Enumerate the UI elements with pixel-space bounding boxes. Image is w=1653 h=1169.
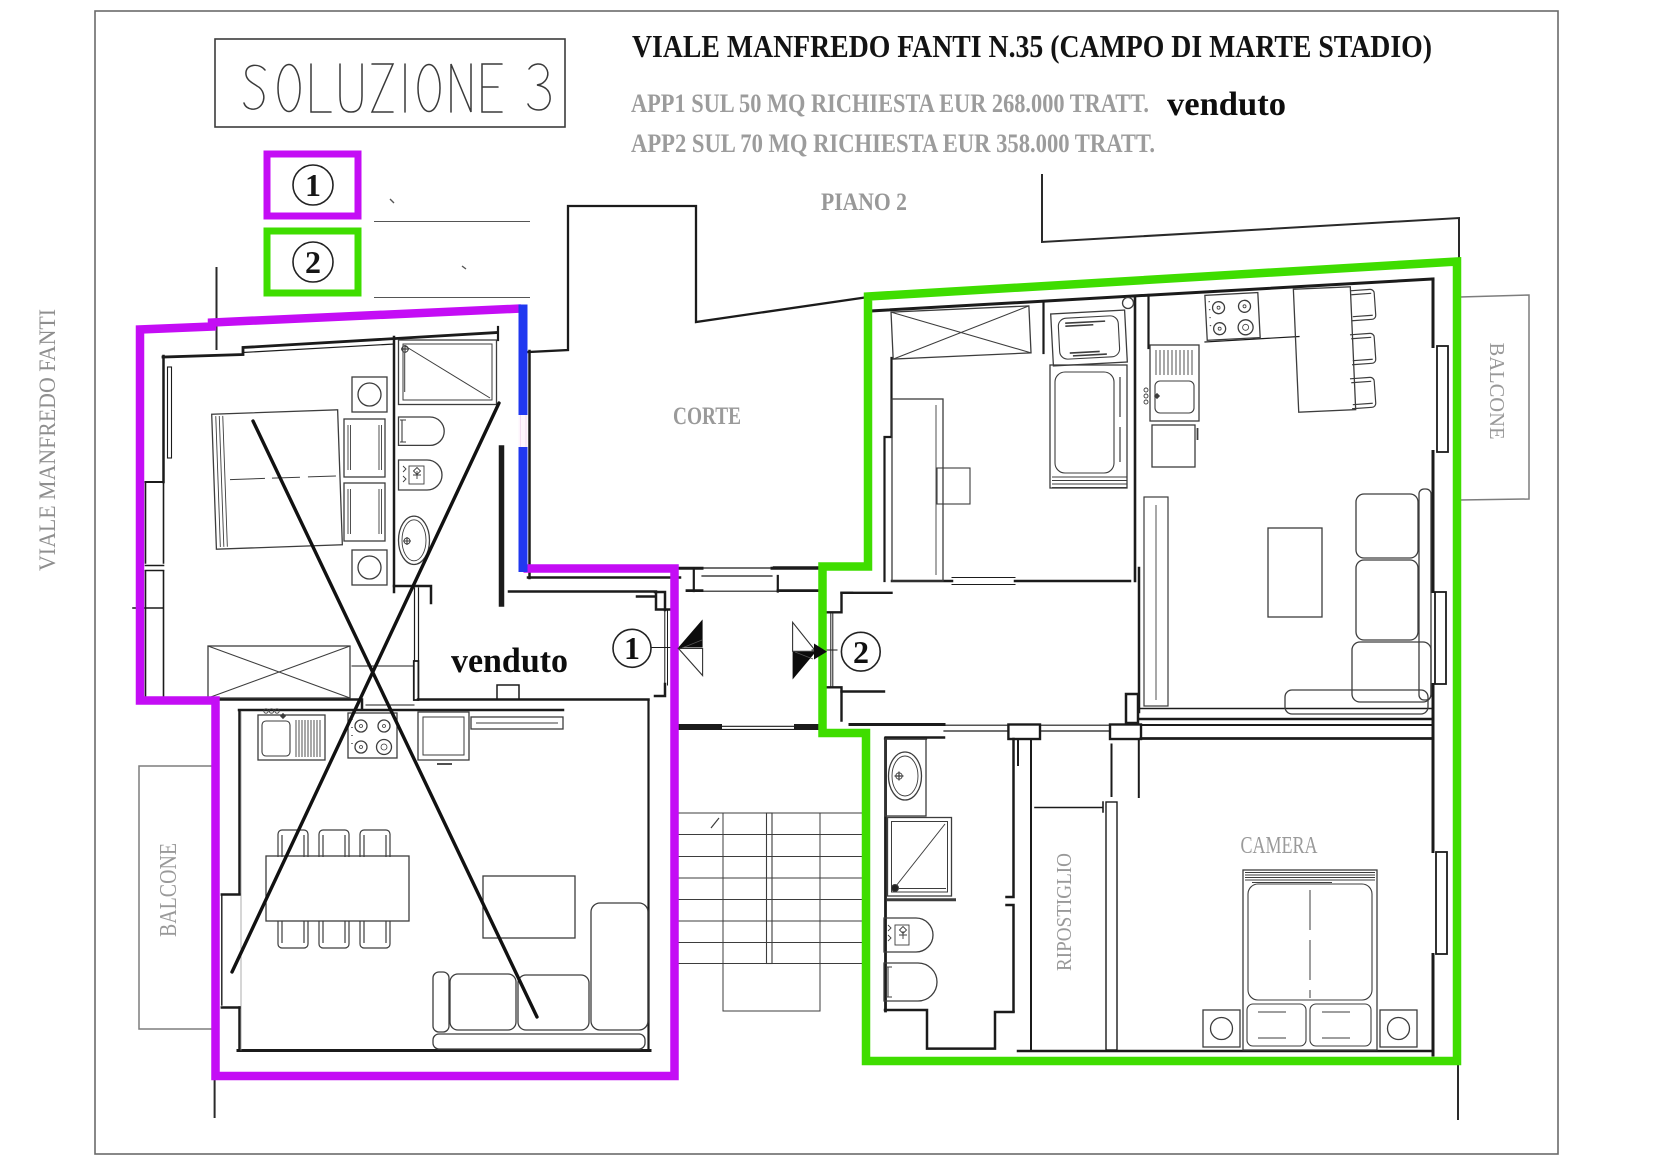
svg-text:RIPOSTIGLIO: RIPOSTIGLIO (1052, 853, 1076, 971)
svg-text:CORTE: CORTE (673, 403, 741, 430)
svg-text:APP1 SUL 50 MQ RICHIESTA EUR 2: APP1 SUL 50 MQ RICHIESTA EUR 268.000 TRA… (631, 89, 1149, 118)
svg-text:2: 2 (853, 634, 869, 670)
svg-text:APP2 SUL 70 MQ RICHIESTA EUR 3: APP2 SUL 70 MQ RICHIESTA EUR 358.000 TRA… (631, 129, 1155, 158)
svg-text:CAMERA: CAMERA (1241, 833, 1318, 859)
svg-text:BALCONE: BALCONE (1485, 343, 1509, 440)
svg-text:VIALE MANFREDO FANTI: VIALE MANFREDO FANTI (35, 309, 60, 571)
svg-text:venduto: venduto (451, 641, 568, 680)
svg-text:1: 1 (305, 167, 321, 203)
svg-text:PIANO 2: PIANO 2 (821, 189, 907, 216)
svg-text:VIALE MANFREDO FANTI N.35 (CA: VIALE MANFREDO FANTI N.35 (CAMPO DI MART… (632, 29, 1432, 64)
svg-text:BALCONE: BALCONE (156, 843, 182, 937)
svg-text:2: 2 (305, 244, 321, 280)
svg-text:venduto: venduto (1167, 86, 1286, 123)
svg-text:1: 1 (624, 630, 640, 666)
